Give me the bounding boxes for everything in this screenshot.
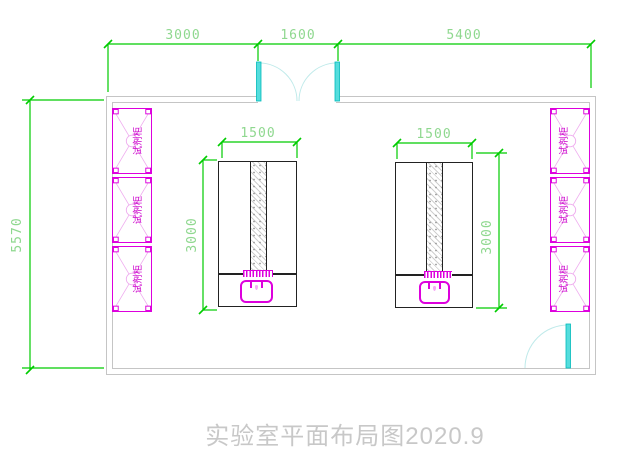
dim-label-5400-top: 5400 [426, 28, 502, 43]
dim-label-1500-left-bench: 1500 [220, 126, 296, 141]
reagent-cabinet: 试剂柜 [550, 177, 590, 243]
reagent-cabinet: 试剂柜 [112, 246, 152, 312]
lab-bench-right [395, 162, 473, 308]
sink-faucet-bar [424, 271, 452, 278]
reagent-cabinet: 试剂柜 [112, 177, 152, 243]
lab-floor-plan: 3000 1600 5400 5570 1500 1500 3000 3000 … [0, 0, 619, 469]
water-drop-icon [433, 286, 436, 291]
sink-faucet-bar [243, 270, 273, 277]
bench-shelf-strip [250, 162, 267, 273]
wall-inner-line [112, 102, 590, 369]
top-dimension-chain [104, 40, 595, 92]
sink-basin [240, 280, 273, 303]
dim-label-3000-left-bench: 3000 [186, 207, 200, 263]
tap-icon [250, 282, 252, 288]
cabinet-label: 试剂柜 [556, 127, 570, 156]
reagent-cabinet: 试剂柜 [112, 108, 152, 174]
cabinet-label: 试剂柜 [130, 127, 144, 156]
dim-label-1600-top: 1600 [260, 28, 336, 43]
cabinet-label: 试剂柜 [130, 265, 144, 294]
sink-basin [419, 281, 450, 304]
tap-icon [439, 283, 441, 289]
cabinet-label: 试剂柜 [130, 196, 144, 225]
dim-label-1500-right-bench: 1500 [396, 127, 472, 142]
reagent-cabinet: 试剂柜 [550, 108, 590, 174]
tap-icon [428, 283, 430, 289]
bench-shelf-strip [426, 163, 443, 274]
tick-marks [26, 96, 34, 374]
water-drop-icon [255, 285, 258, 290]
cabinet-label: 试剂柜 [556, 265, 570, 294]
tap-icon [261, 282, 263, 288]
cabinet-label: 试剂柜 [556, 196, 570, 225]
lab-bench-left [218, 161, 297, 307]
dim-label-3000-top: 3000 [145, 28, 221, 43]
dim-label-5570-left: 5570 [11, 207, 25, 263]
dim-label-3000-right-bench: 3000 [481, 209, 495, 265]
reagent-cabinet: 试剂柜 [550, 246, 590, 312]
drawing-title: 实验室平面布局图2020.9 [170, 416, 520, 451]
left-dimension [22, 96, 104, 374]
top-door-opening [258, 95, 336, 105]
